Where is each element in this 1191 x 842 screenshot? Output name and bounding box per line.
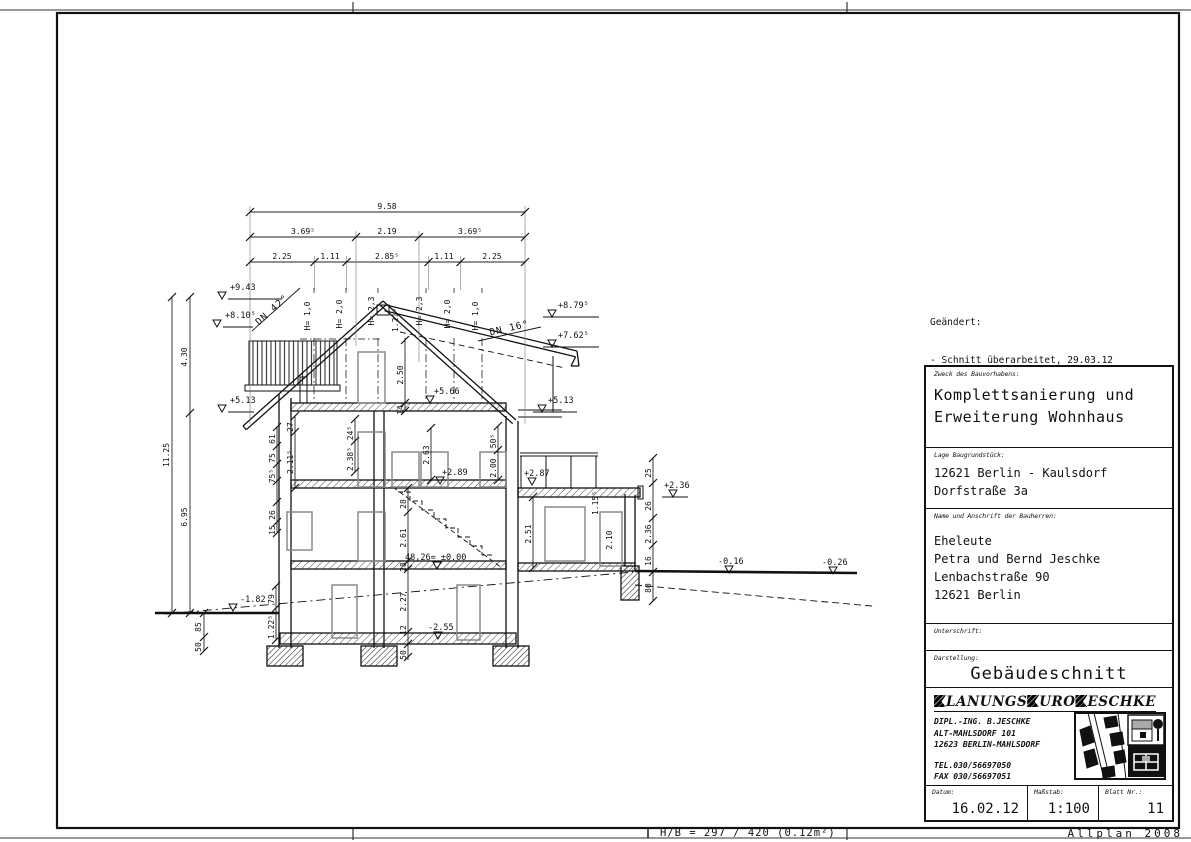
dim-label: 14 xyxy=(396,405,405,415)
dim-label: 50 xyxy=(399,650,408,660)
dim-label: 50⁵ xyxy=(489,434,498,448)
roof-pitch-label: DN 16° xyxy=(489,319,531,339)
level-labels: +9.43 +8.10⁵ +8.79⁵ +7.62⁵ +5.13 +5.13 +… xyxy=(225,283,848,633)
signature-label: Unterschrift: xyxy=(934,627,1164,635)
dim-label: 3.69⁵ xyxy=(458,227,482,236)
dim-label: 2.25 xyxy=(272,252,291,261)
dim-label: 12 xyxy=(399,625,408,635)
purpose-section: Zweck des Bauvorhabens: Komplettsanierun… xyxy=(926,367,1172,448)
firewall-elevation xyxy=(245,341,340,391)
level-label: +5.13 xyxy=(548,396,574,406)
dim-label: 24⁵ xyxy=(346,426,355,440)
sheet-value: 11 xyxy=(1147,801,1164,817)
dim-label: 2.25 xyxy=(482,252,501,261)
logo-flag-icon xyxy=(1075,695,1087,707)
title-block: Zweck des Bauvorhabens: Komplettsanierun… xyxy=(924,365,1174,822)
drempel-label: H= 2,0 xyxy=(443,299,452,328)
dim-label: 4.30 xyxy=(180,347,189,366)
dim-label: 28 xyxy=(399,562,408,572)
dim-label: 2.11⁵ xyxy=(286,450,295,474)
dim-label: 2.27 xyxy=(399,592,408,611)
level-label: +9.43 xyxy=(230,283,256,293)
dim-label: 28 xyxy=(399,499,408,509)
dim-label: 27 xyxy=(286,422,295,432)
drempel-label: H= 2,0 xyxy=(335,299,344,328)
site-line: Dorfstraße 3a xyxy=(934,482,1164,500)
floor-slabs xyxy=(280,403,643,644)
site-label: Lage Baugrundstück: xyxy=(934,451,1164,459)
level-label: +5.13 xyxy=(230,396,256,406)
dim-label: 75 xyxy=(268,453,277,463)
dim-label: 1.11 xyxy=(434,252,453,261)
firm-logo: LANUNGSUROESCHKE xyxy=(934,694,1156,712)
level-label: +7.62⁵ xyxy=(558,331,589,341)
purpose-label: Zweck des Bauvorhabens: xyxy=(934,370,1164,378)
dim-label: 16 xyxy=(644,556,653,566)
dim-label: 1.11 xyxy=(320,252,339,261)
sheet-label: Blatt Nr.: xyxy=(1105,788,1166,796)
dim-label: 85 xyxy=(194,622,203,632)
dim-label: 2.61 xyxy=(399,528,408,547)
level-label: +2.89 xyxy=(442,468,468,478)
logo-text: URO xyxy=(1039,694,1075,710)
foundations xyxy=(267,566,639,666)
level-label: +8.10⁵ xyxy=(225,311,256,321)
application-label: Allplan 2008 xyxy=(1068,827,1183,840)
drempel-label: H= 2,3 xyxy=(415,296,424,325)
dim-label: 1.22⁵ xyxy=(267,615,276,639)
dim-label: 2.63 xyxy=(422,445,431,464)
level-label: +5.66 xyxy=(434,387,460,397)
date-value: 16.02.12 xyxy=(952,801,1019,817)
level-label: -0.26 xyxy=(822,558,848,568)
purpose-line: Erweiterung Wohnhaus xyxy=(934,406,1164,428)
drempel-label: H= 1,0 xyxy=(303,301,312,330)
terrain xyxy=(155,571,872,614)
owner-line: Eheleute xyxy=(934,532,1164,550)
dim-label: 2.19 xyxy=(377,227,396,236)
logo-text: LANUNGS xyxy=(946,694,1027,710)
dim-label: 3.69⁵ xyxy=(291,227,315,236)
building xyxy=(155,301,872,666)
owner-label: Name und Anschrift der Bauherren: xyxy=(934,512,1164,520)
dim-label: 9.58 xyxy=(377,202,396,211)
drawing-title: Gebäudeschnitt xyxy=(934,664,1164,684)
plot-sheet: 9.58 3.69⁵ 2.19 3.69⁵ 2.25 1.11 2.85⁵ 1.… xyxy=(0,0,1191,842)
level-label: +8.79⁵ xyxy=(558,301,589,311)
site-section: Lage Baugrundstück: 12621 Berlin - Kauls… xyxy=(926,448,1172,509)
firm-section: LANUNGSUROESCHKE DIPL.-ING. B.JESCHKE AL… xyxy=(926,688,1172,785)
signature-section: Unterschrift: xyxy=(926,624,1172,651)
date-label: Datum: xyxy=(932,788,1021,796)
dimension-labels: 9.58 3.69⁵ 2.19 3.69⁵ 2.25 1.11 2.85⁵ 1.… xyxy=(162,202,653,660)
level-label: -2.55 xyxy=(428,623,454,633)
roof-pitch-label: DN 42° xyxy=(254,293,291,328)
dim-label: 61 xyxy=(268,434,277,444)
owner-section: Name und Anschrift der Bauherren: Eheleu… xyxy=(926,509,1172,624)
dim-label: 2.85⁵ xyxy=(375,252,399,261)
sheet-cell: Blatt Nr.: 11 xyxy=(1099,786,1172,820)
drempel-label: H= 2,3 xyxy=(367,296,376,325)
sheet-format-label: H/B = 297 / 420 (0.12m²) xyxy=(660,827,836,839)
level-label: +2.87 xyxy=(524,469,550,479)
level-label: -1.82 xyxy=(240,595,266,605)
dim-label: 2.50 xyxy=(396,365,405,384)
logo-flag-icon xyxy=(1027,695,1039,707)
dim-label: 2.10 xyxy=(605,530,614,549)
owner-line: Petra und Bernd Jeschke xyxy=(934,550,1164,568)
representation-label: Darstellung: xyxy=(934,654,1164,662)
level-label: -0.16 xyxy=(718,557,744,567)
dim-label: 80 xyxy=(644,583,653,593)
owner-line: Lenbachstraße 90 xyxy=(934,568,1164,586)
dim-label: 6.95 xyxy=(180,507,189,526)
dimension-lines xyxy=(168,206,657,661)
owner-line: 12621 Berlin xyxy=(934,586,1164,604)
dim-label: 1.21⁵ xyxy=(391,308,400,332)
dim-label: 1.15⁵ xyxy=(591,491,600,515)
purpose-line: Komplettsanierung und xyxy=(934,384,1164,406)
dim-label: 11.25 xyxy=(162,443,171,467)
scale-cell: Maßstab: 1:100 xyxy=(1028,786,1099,820)
level-label: +2.36 xyxy=(664,481,690,491)
dim-label: 75⁵ xyxy=(268,469,277,483)
dim-label: 2.51 xyxy=(524,524,533,543)
dim-label: 2.00 xyxy=(489,458,498,477)
level-label: 48,26= ±0.00 xyxy=(405,553,466,563)
representation-section: Darstellung: Gebäudeschnitt xyxy=(926,651,1172,688)
logo-flag-icon xyxy=(934,695,946,707)
titleblock-bottom-row: Datum: 16.02.12 Maßstab: 1:100 Blatt Nr.… xyxy=(926,785,1172,820)
scale-value: 1:100 xyxy=(1048,801,1090,817)
dim-label: 26 xyxy=(644,501,653,511)
dim-label: 50 xyxy=(194,642,203,652)
logo-siteplan-icon xyxy=(1074,712,1166,780)
dim-label: 2.38⁵ xyxy=(346,447,355,471)
scale-label: Maßstab: xyxy=(1034,788,1092,796)
date-cell: Datum: 16.02.12 xyxy=(926,786,1028,820)
dim-label: 79 xyxy=(267,594,276,604)
revision-title: Geändert: xyxy=(930,317,1160,330)
drempel-label: H= 1,0 xyxy=(471,301,480,330)
dim-label: 2.36 xyxy=(644,524,653,543)
dim-label: 15 xyxy=(268,525,277,535)
dim-label: 26 xyxy=(268,510,277,520)
site-line: 12621 Berlin - Kaulsdorf xyxy=(934,464,1164,482)
dim-label: 25 xyxy=(644,468,653,478)
logo-text: ESCHKE xyxy=(1087,694,1156,710)
